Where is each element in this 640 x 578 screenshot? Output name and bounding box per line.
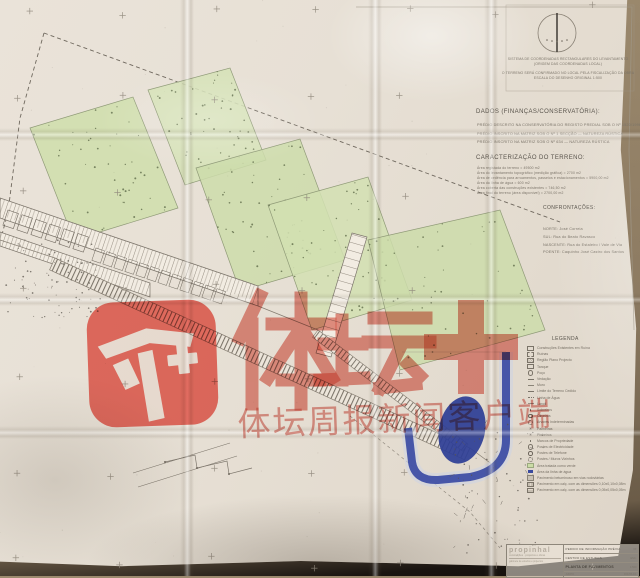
legend-label: Pavimento em calç. com as dimensões 0,10… [537,482,626,486]
text-line: PRÉDIO INSCRITO NA MATRIZ SOB O Nº 634 —… [477,140,640,145]
text-line: POENTE: Caquinho José Castro dos Santos [543,250,624,255]
legend-label: Pavimento betuminoso em vias rodoviárias [537,476,604,480]
dados-title: DADOS (FINANÇAS/CONSERVATÓRIA): [476,109,600,115]
legend-symbol-icon [527,475,534,480]
legend-label: Pinheiros [537,433,552,437]
confrontacoes-lines: NORTE: José CorreiaSUL: Rua do Beato Rav… [543,227,624,258]
legend-label: Tanque [537,365,548,369]
legenda-title: LEGENDA [552,336,579,342]
logo-tagline: construções · projectos e obras [509,554,561,557]
legend-label: Postes de Telefone [537,451,567,455]
text-line: (ORIGEM DAS COORDENADAS LOCAL) [498,62,638,67]
coordinate-notes: SISTEMA DE COORDENADAS RECTANGULARES DO … [498,57,638,80]
legend-label: Postes de Electricidade [537,445,574,449]
text-line: ESCALA DO DESENHO ORIGINAL 1:500 [498,76,638,81]
legend-symbol-icon [527,352,534,357]
title-block-row: PLANTA DE PAVIMENTOS1:500 [564,563,638,572]
legend-symbol-icon: ✳ [527,433,534,436]
legend-symbol-icon [527,463,534,468]
title-block-row: PEDIDO DE INFORMAÇÃO PRÉVIANº [564,545,638,554]
legend-label: Área tratada como verde [537,464,576,468]
legend-symbol-icon [527,440,534,442]
architect-logo: propinhal construções · projectos e obra… [507,545,564,577]
legend-label: Sobreiros [537,408,552,412]
title-block-meta: JUNHO FOLHA 1/1 [564,572,638,577]
legend-symbol-icon [527,457,534,462]
legend-symbol-icon [527,414,534,419]
caracterizacao-title: CARACTERIZAÇÃO DO TERRENO: [476,155,585,161]
legend-symbol-icon [527,420,534,425]
legend-symbol-icon [527,403,534,404]
north-arrow-compass [538,13,576,52]
legend-symbol-icon [527,391,534,392]
section-sketch [133,443,252,487]
legend-label: Poço [537,371,545,375]
logo-text: propinhal [509,547,561,554]
text-line: PRÉDIO DESCRITO NA CONSERVATÓRIA DO REGI… [477,123,640,128]
legend-label: Área da linha de água [537,470,571,474]
legend-symbol-icon [527,364,534,369]
dados-lines: PRÉDIO DESCRITO NA CONSERVATÓRIA DO REGI… [477,123,640,149]
legend-symbol-icon [527,370,534,375]
legend-symbol-icon [527,397,534,398]
text-line: PRÉDIO INSCRITO NA MATRIZ SOB O Nº 1 SEC… [477,132,640,137]
caracterizacao-lines: Área registada do terreno = 49500 m2Área… [477,166,609,195]
legend-symbol-icon [527,488,534,493]
legend-label: Palmeiras [537,427,553,431]
legend-label: Marcos de Propriedade [537,439,573,443]
legend-list: Construções Existentes em RuínaRuínasReg… [527,345,626,494]
legend-label: Postes / Muros Vizinhos [537,457,574,461]
text-line: SISTEMA DE COORDENADAS RECTANGULARES DO … [498,57,638,62]
legend-label: Limite do Terreno Cedido [537,389,576,393]
legend-label: Ruínas [537,352,548,356]
legend-symbol-icon [527,346,534,351]
text-line: SUL: Rua do Beato Ravasco [543,235,624,240]
legend-label: Vedação [537,377,551,381]
legend-item: Pavimento em calç. com as dimensões 0,05… [527,487,626,493]
title-block-table: PEDIDO DE INFORMAÇÃO PRÉVIANºCENTRO DE E… [564,545,638,577]
legend-label: Árvores Indeterminadas [537,420,574,424]
confrontacoes-title: CONFRONTAÇÕES: [543,205,595,211]
legend-symbol-icon [527,409,534,411]
legend-label: Linha de Água [537,396,560,400]
photo-of-folded-site-plan: { "watermark": { "brand": "体坛+", "subtit… [0,0,640,576]
legend-symbol-icon [527,451,534,456]
legend-symbol-icon: ✳ [527,427,534,430]
text-line: Área de cedência para arruamentos, passe… [477,176,609,181]
legend-symbol-icon [527,444,534,449]
title-block-row: CENTRO DE ESTUDOSESC. [564,554,638,563]
text-line: NORTE: José Correia [543,227,624,232]
legend-symbol-icon [527,470,534,473]
legend-label: Região Plano Projecto [537,358,572,362]
legend-label: Construções Existentes em Ruína [537,346,590,350]
legend-label: Oliveiras [537,414,551,418]
legend-label: Pavimento em calç. com as dimensões 0,05… [537,488,626,492]
green-parcels [30,68,545,370]
text-line: Área final do terreno (área disponível) … [477,191,609,196]
legend-symbol-icon [527,385,534,386]
legend-label: Lancil [537,402,546,406]
legend-symbol-icon [527,358,534,363]
legend-label: Muro [537,383,545,387]
legend-symbol-icon [527,482,534,487]
text-line: NASCENTE: Rua do Estaleiro / Vale de Via [543,243,624,248]
logo-subline: gabinete de estudos e projectos [509,558,561,563]
legend-symbol-icon [527,379,534,380]
title-block: propinhal construções · projectos e obra… [506,544,639,578]
